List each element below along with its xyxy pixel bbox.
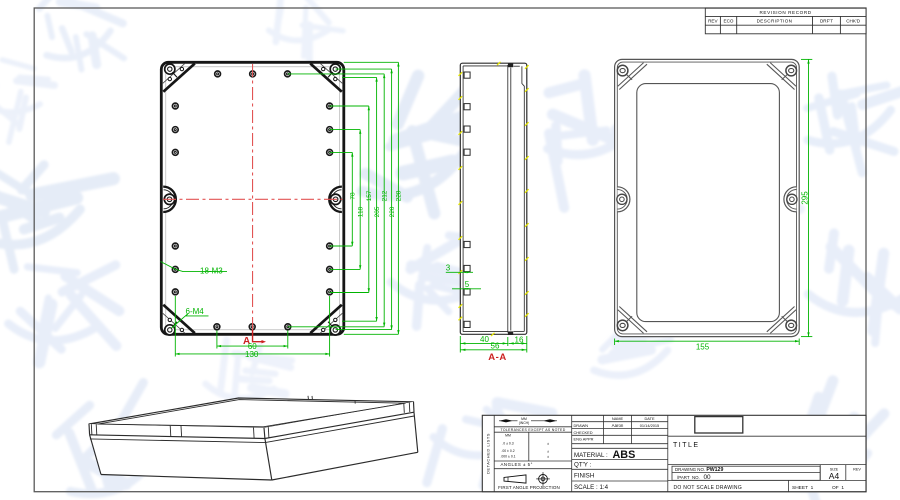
- svg-text:MM: MM: [505, 434, 511, 438]
- svg-text:TITLE: TITLE: [673, 442, 700, 449]
- svg-text:A4: A4: [829, 471, 840, 481]
- svg-text:±: ±: [547, 450, 549, 454]
- svg-text:.00 ± 0.2: .00 ± 0.2: [501, 449, 514, 453]
- svg-text:CHK'D: CHK'D: [846, 19, 861, 24]
- svg-text:212: 212: [381, 190, 388, 201]
- svg-text:220: 220: [389, 206, 396, 217]
- svg-text:A-A: A-A: [488, 352, 506, 363]
- svg-text:3: 3: [446, 264, 451, 273]
- svg-text:40: 40: [480, 335, 489, 344]
- svg-text:±: ±: [547, 455, 549, 459]
- svg-text:DO NOT SCALE DRAWING: DO NOT SCALE DRAWING: [674, 485, 743, 491]
- svg-text:.0 ± 0.3: .0 ± 0.3: [502, 442, 513, 446]
- svg-text:OF 1: OF 1: [832, 485, 844, 491]
- svg-text:REVISION RECORD: REVISION RECORD: [760, 10, 812, 15]
- svg-text:SHEET 1: SHEET 1: [792, 485, 814, 491]
- svg-text:NAME: NAME: [612, 416, 624, 421]
- svg-text:157: 157: [366, 190, 373, 201]
- svg-text:56: 56: [491, 341, 500, 350]
- svg-text:MM: MM: [521, 417, 527, 421]
- svg-text:SCALE : 1:4: SCALE : 1:4: [574, 484, 609, 491]
- svg-text:.000 ± 0.1: .000 ± 0.1: [500, 454, 515, 458]
- svg-text:18-M3: 18-M3: [200, 267, 223, 276]
- svg-text:DETACHED LISTS: DETACHED LISTS: [486, 433, 491, 474]
- svg-text:295: 295: [800, 191, 809, 205]
- svg-text:DRF'T: DRF'T: [820, 19, 833, 24]
- svg-text:205: 205: [374, 206, 381, 217]
- svg-text:155: 155: [696, 342, 710, 351]
- svg-text:6-M4: 6-M4: [186, 307, 205, 316]
- svg-text:DATE: DATE: [644, 416, 654, 421]
- svg-text:REV: REV: [853, 467, 861, 471]
- svg-text:118: 118: [357, 206, 364, 217]
- svg-text:5: 5: [465, 280, 470, 289]
- svg-text:±: ±: [547, 442, 549, 446]
- svg-text:MATERIAL :: MATERIAL :: [574, 452, 608, 459]
- svg-text:DRAWN: DRAWN: [574, 423, 589, 428]
- svg-text:228: 228: [396, 190, 403, 201]
- svg-text:REV: REV: [708, 19, 718, 24]
- svg-text:ABS: ABS: [613, 449, 636, 461]
- svg-text:ANGLES ± 5°: ANGLES ± 5°: [501, 462, 533, 467]
- svg-text:ECO: ECO: [724, 19, 734, 24]
- svg-text:FINISH: FINISH: [574, 473, 594, 480]
- svg-text:/PART NO. 00: /PART NO. 00: [677, 474, 711, 481]
- svg-text:16: 16: [515, 336, 524, 345]
- svg-text:TOLERANCES EXCEPT AS NOTED: TOLERANCES EXCEPT AS NOTED: [500, 428, 565, 432]
- svg-text:Aaron: Aaron: [612, 423, 624, 428]
- svg-text:CHECKED: CHECKED: [574, 430, 593, 435]
- svg-text:DESCRIPTION: DESCRIPTION: [757, 19, 793, 24]
- svg-text:QT'Y :: QT'Y :: [574, 462, 592, 469]
- svg-text:78: 78: [350, 192, 357, 200]
- svg-text:130: 130: [245, 350, 259, 359]
- svg-text:01/14/2015: 01/14/2015: [640, 423, 659, 428]
- svg-text:(INCH): (INCH): [519, 421, 530, 425]
- svg-text:ENG APPR: ENG APPR: [574, 437, 594, 442]
- svg-text:FIRST ANGLE PROJECTION: FIRST ANGLE PROJECTION: [498, 485, 560, 490]
